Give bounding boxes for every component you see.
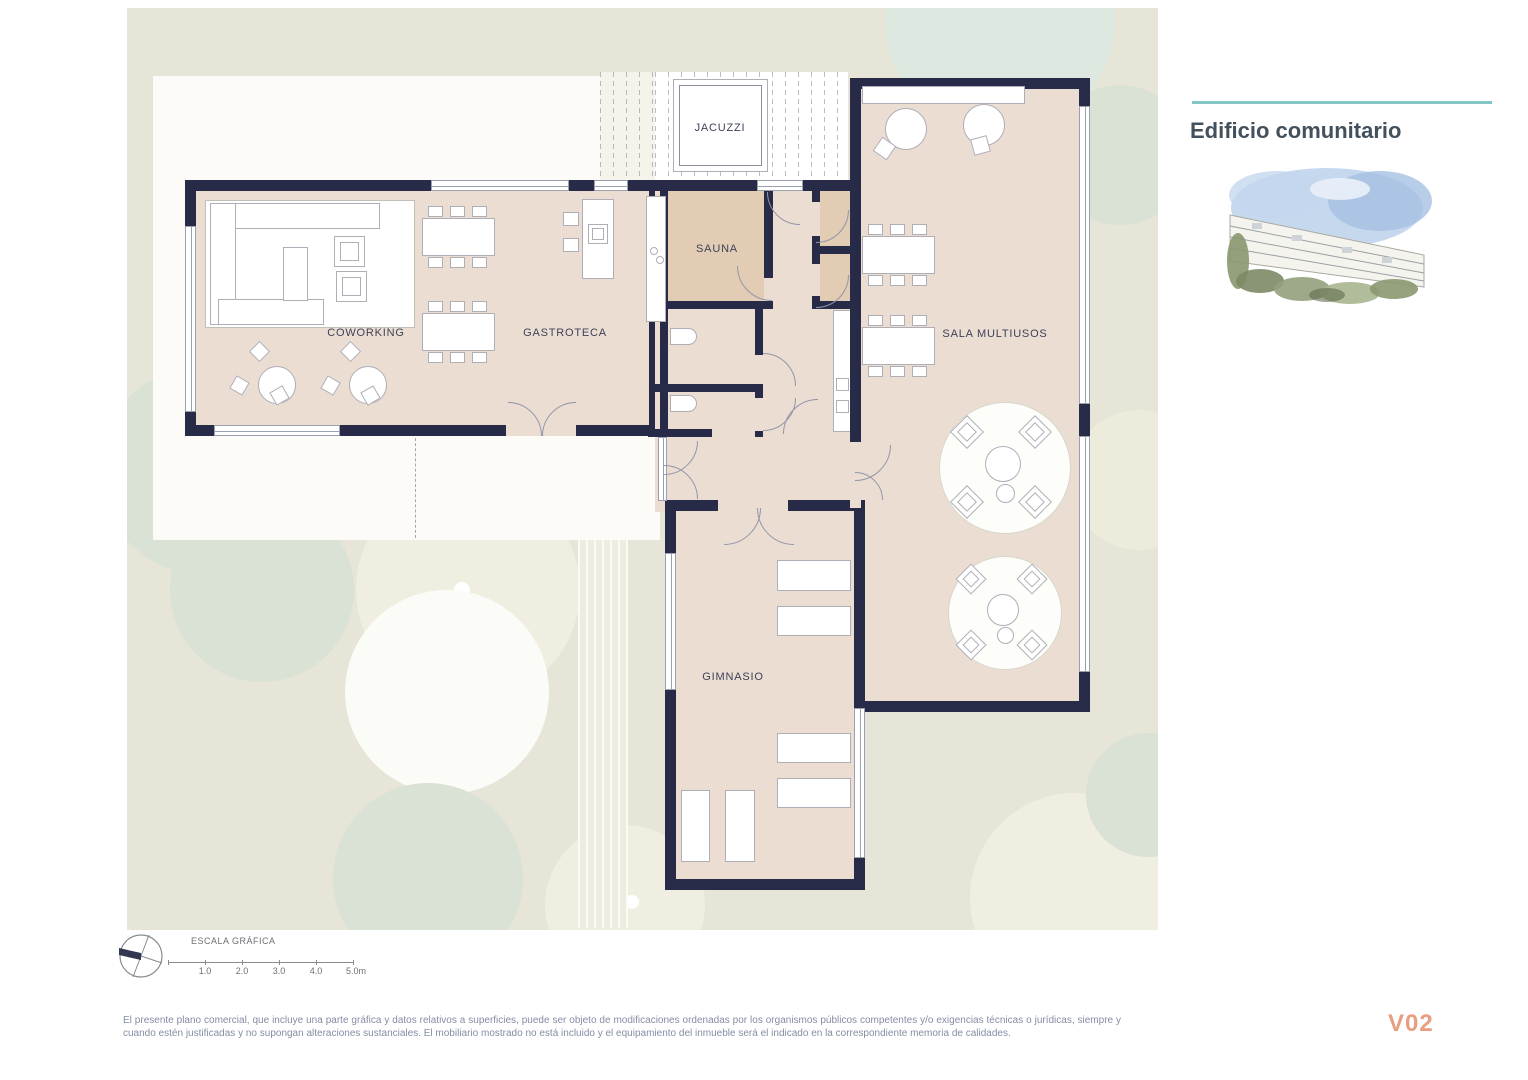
wall: [812, 246, 852, 254]
tree-blob: [333, 783, 523, 930]
scale-tick: [205, 960, 206, 965]
window: [854, 708, 865, 858]
scale-tick: [242, 960, 243, 965]
window: [1079, 106, 1090, 404]
tree-blob: [345, 590, 549, 794]
gym-equipment: [777, 778, 851, 808]
window: [594, 180, 628, 191]
coffee-table: [283, 247, 308, 301]
washbasin: [836, 378, 849, 391]
kitchen-sink: [588, 224, 608, 244]
floor-plan-sheet: JACUZZI SAUNA COWORKING GASTROTECA SALA …: [0, 0, 1528, 1080]
north-compass-icon: [116, 931, 166, 981]
toilet: [670, 328, 697, 345]
wall: [755, 431, 763, 437]
window: [431, 180, 569, 191]
cooktop-burner: [656, 256, 664, 264]
sofa-chaise: [218, 299, 324, 325]
chair: [912, 366, 927, 377]
scale-tick-label: 3.0: [273, 966, 286, 976]
gym-mat: [725, 790, 755, 862]
chair: [472, 352, 487, 363]
side-table: [996, 484, 1015, 503]
legal-disclaimer: El presente plano comercial, que incluye…: [123, 1014, 1121, 1040]
chair: [868, 366, 883, 377]
chair: [472, 301, 487, 312]
chair: [912, 275, 927, 286]
chair: [450, 352, 465, 363]
scale-title: ESCALA GRÁFICA: [191, 936, 276, 946]
version-badge: V02: [1388, 1010, 1434, 1038]
window: [757, 180, 803, 191]
chair: [472, 257, 487, 268]
cooktop-burner: [650, 247, 658, 255]
scale-line: [168, 962, 353, 963]
chair: [890, 224, 905, 235]
chair: [868, 224, 883, 235]
room-label-coworking: COWORKING: [327, 327, 404, 339]
window: [214, 425, 340, 436]
chair: [428, 257, 443, 268]
gym-equipment: [777, 606, 851, 636]
work-table: [422, 218, 495, 256]
building-watercolor-icon: [1222, 163, 1434, 315]
room-label-jacuzzi: JACUZZI: [695, 122, 746, 134]
chair: [912, 224, 927, 235]
scale-bar: 1.0 2.0 3.0 4.0 5.0m: [168, 960, 353, 978]
scale-tick-label: 1.0: [199, 966, 212, 976]
gym-equipment: [777, 733, 851, 763]
scale-tick: [279, 960, 280, 965]
wall: [755, 392, 763, 398]
meeting-table: [862, 327, 935, 365]
washbasin: [836, 400, 849, 413]
chair: [868, 275, 883, 286]
side-table: [985, 446, 1021, 482]
chair: [450, 301, 465, 312]
meeting-table: [862, 236, 935, 274]
chair: [890, 366, 905, 377]
armchair: [334, 236, 365, 267]
wall: [812, 180, 820, 202]
stool: [563, 212, 579, 226]
window: [665, 553, 676, 690]
chair: [450, 206, 465, 217]
side-table: [997, 627, 1014, 644]
wall: [655, 301, 773, 309]
room-label-gastroteca: GASTROTECA: [523, 327, 607, 339]
chair: [428, 352, 443, 363]
scale-tick-label: 2.0: [236, 966, 249, 976]
wall: [648, 429, 712, 437]
window: [1079, 436, 1090, 672]
chair: [450, 257, 465, 268]
scale-tick-label: 4.0: [310, 966, 323, 976]
side-table: [987, 594, 1019, 626]
chair: [890, 315, 905, 326]
toilet: [670, 395, 697, 412]
chair: [868, 315, 883, 326]
gym-equipment: [777, 560, 851, 591]
gym-mat: [681, 790, 710, 862]
chair: [472, 206, 487, 217]
chair: [428, 206, 443, 217]
scale-tick: [353, 960, 354, 965]
chair: [890, 275, 905, 286]
scale-tick: [168, 960, 169, 965]
work-table: [422, 313, 495, 351]
page-title: Edificio comunitario: [1190, 118, 1401, 144]
wall: [655, 384, 763, 392]
chair: [428, 301, 443, 312]
garden-path: [578, 540, 628, 928]
armchair: [336, 271, 367, 302]
room-label-sala-multiusos: SALA MULTIUSOS: [942, 328, 1047, 340]
scale-tick-label: 5.0m: [346, 966, 366, 976]
accent-divider: [1192, 101, 1492, 104]
sideboard: [862, 86, 1025, 104]
room-label-sauna: SAUNA: [696, 243, 738, 255]
room-label-gimnasio: GIMNASIO: [702, 671, 763, 683]
chair: [912, 315, 927, 326]
canopy-dashed-line: [415, 438, 416, 538]
scale-tick: [316, 960, 317, 965]
building-illustration: [1222, 163, 1434, 315]
stool: [563, 238, 579, 252]
window: [185, 226, 196, 412]
wall: [755, 309, 763, 355]
